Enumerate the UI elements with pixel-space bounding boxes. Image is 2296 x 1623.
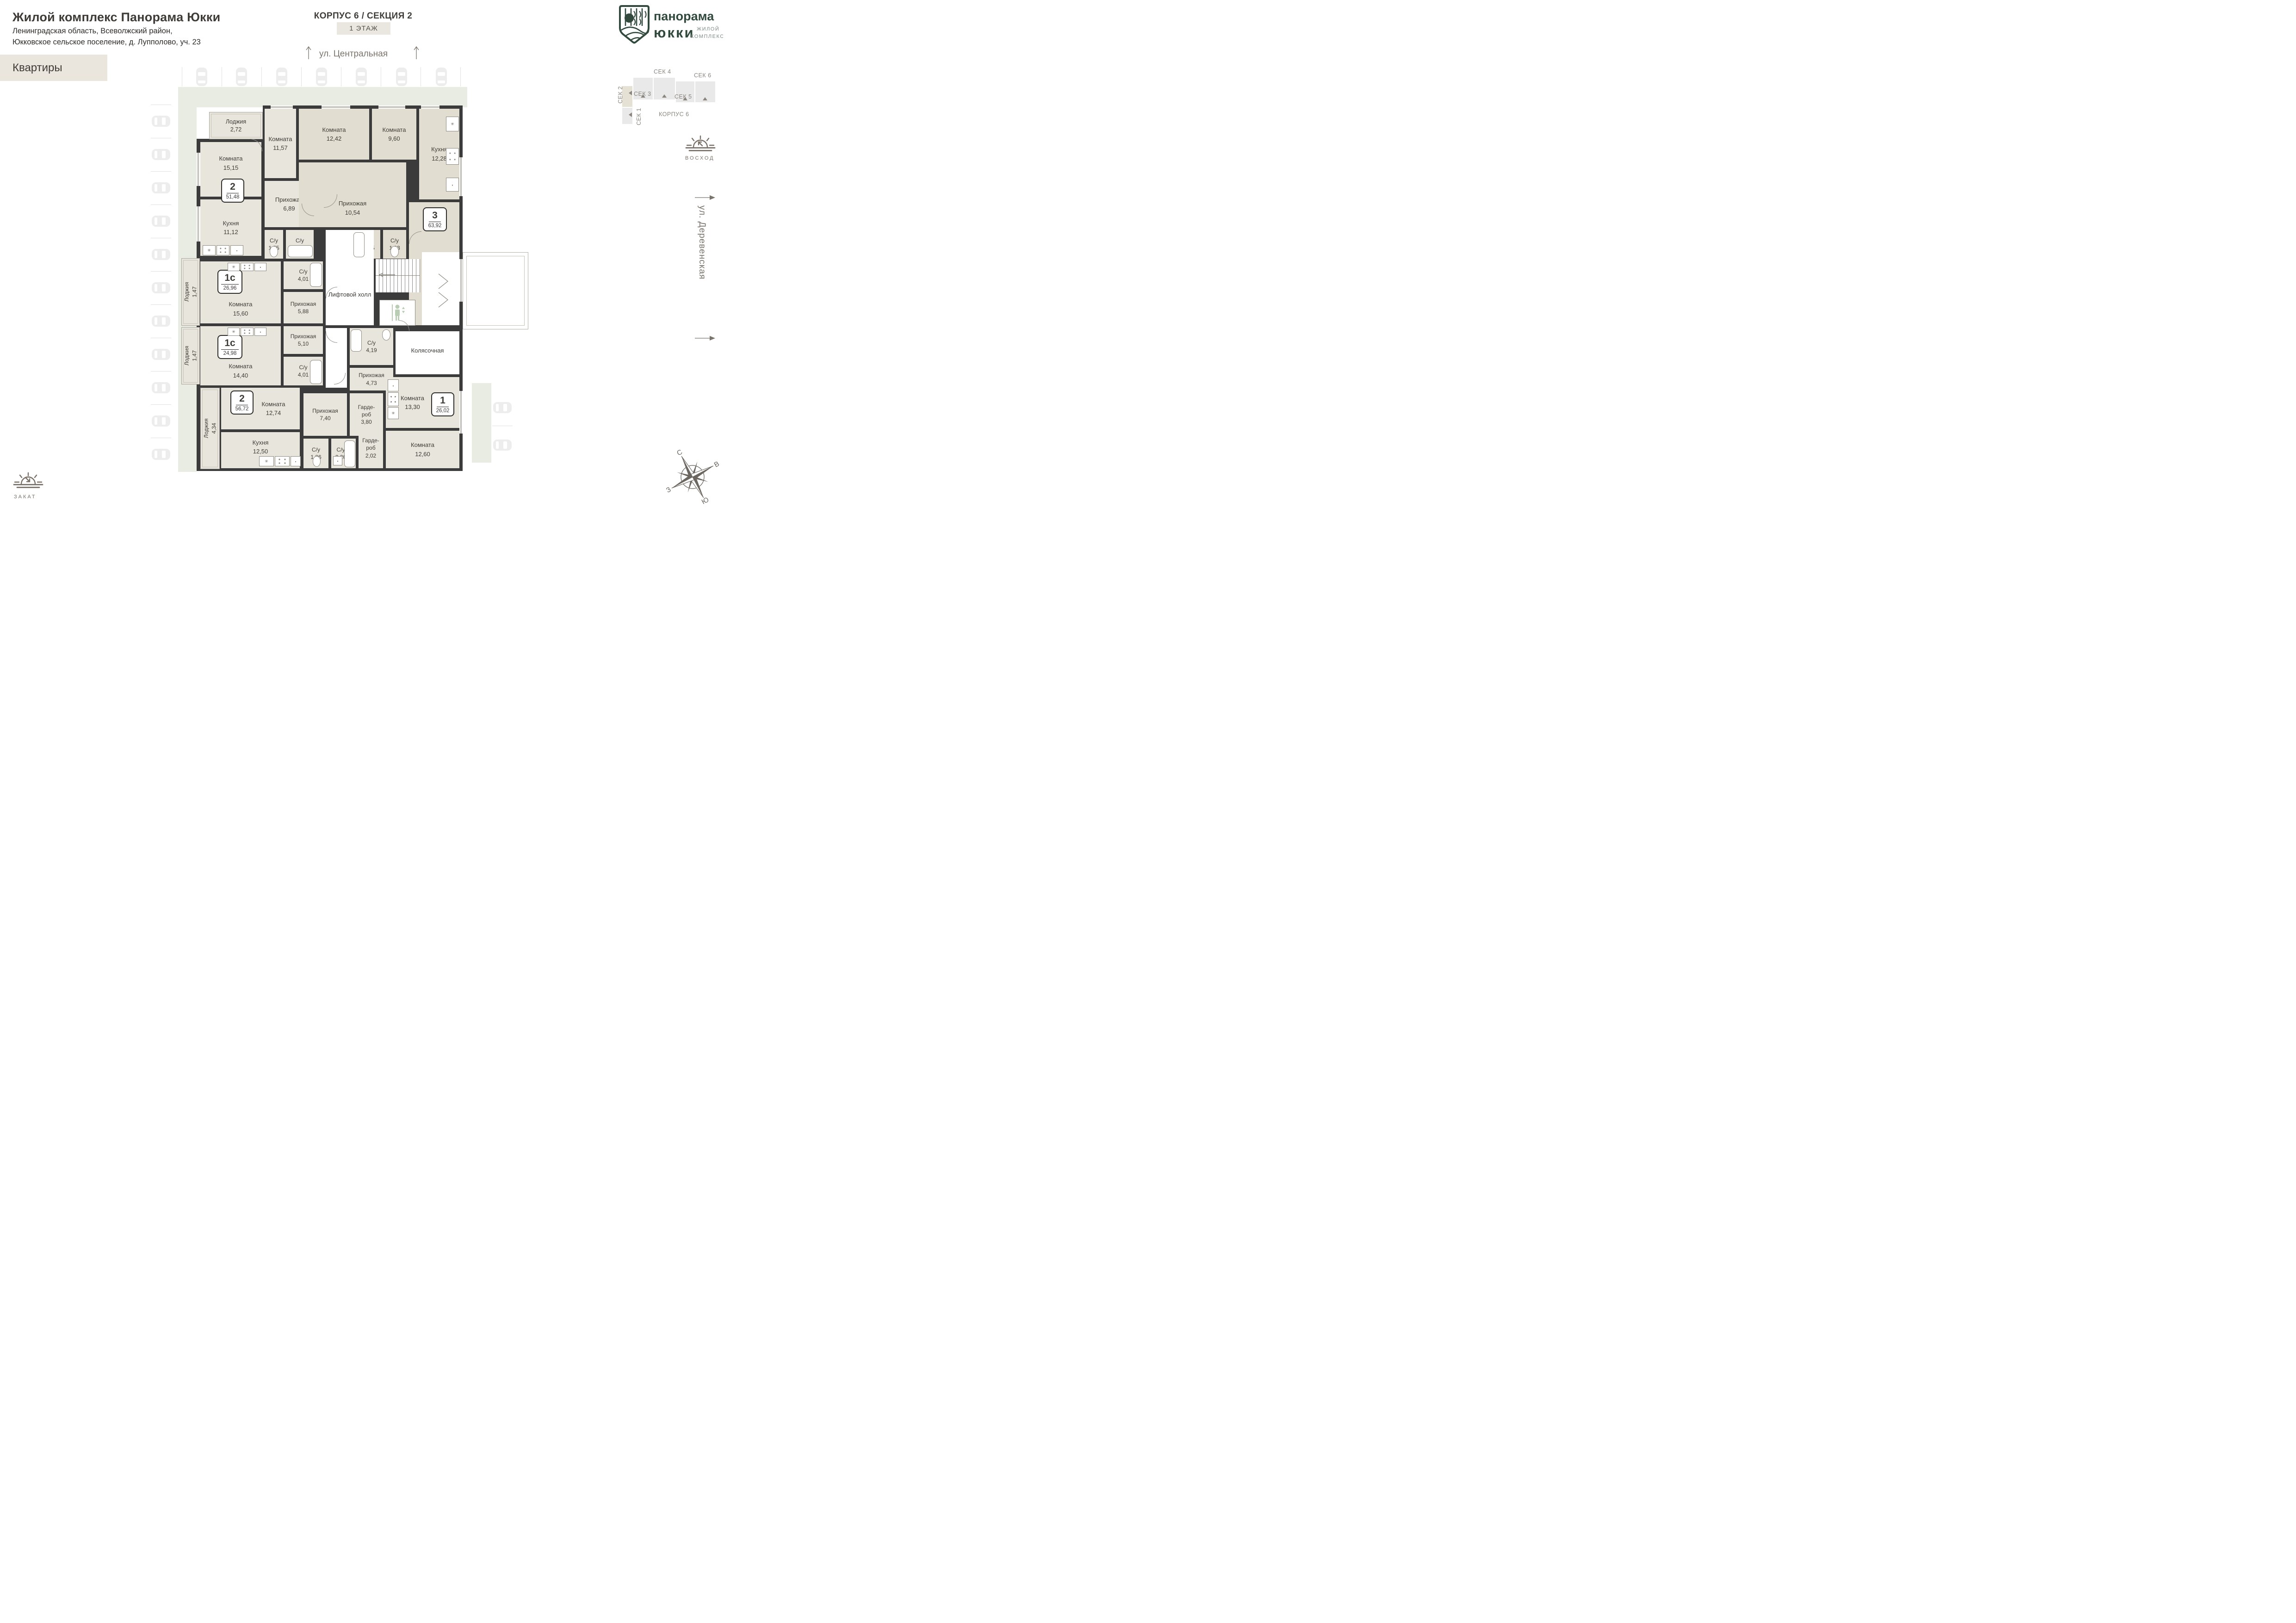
street-right-label: ул. Деревенская — [697, 205, 707, 279]
sunrise-label: ВОСХОД — [685, 155, 715, 161]
apartment-badge-2-56-72[interactable]: 256,72 — [230, 390, 254, 415]
car-icon — [151, 447, 171, 461]
car-icon — [492, 401, 513, 415]
car-icon — [235, 67, 248, 87]
kitchen-sink-icon — [254, 328, 266, 336]
car-icon — [275, 67, 289, 87]
fridge-icon: ✳ — [388, 407, 399, 419]
fridge-icon: ✳ — [228, 328, 240, 336]
toilet-icon — [382, 329, 390, 341]
window — [459, 259, 463, 302]
tab-apartments[interactable]: Квартиры — [0, 55, 107, 81]
room-garderob-2-02[interactable]: Гарде-роб2,02 — [359, 428, 383, 468]
brand-type-line2: КОМПЛЕКС — [691, 33, 723, 41]
tab-apartments-label: Квартиры — [12, 62, 62, 74]
minimap-marker-icon — [662, 94, 667, 98]
building-section-title: КОРПУС 6 / СЕКЦИЯ 2 — [278, 11, 449, 21]
minimap-marker-icon — [703, 97, 707, 100]
lift-hall — [326, 230, 374, 325]
window — [421, 105, 439, 109]
room-prihozhaya-7-40[interactable]: Прихожая7,40 — [303, 393, 347, 436]
minimap-label-sek2: СЕК 2 — [617, 86, 624, 104]
bathtub-icon — [310, 360, 322, 384]
room-komnata-12-42[interactable]: Комната12,42 — [299, 109, 369, 160]
sunset-label: ЗАКАТ — [14, 494, 37, 500]
stove-icon — [275, 456, 290, 466]
compass-icon: С В З Ю — [662, 447, 723, 507]
page-title: Жилой комплекс Панорама Юкки — [12, 10, 220, 25]
stove-icon — [446, 148, 459, 165]
entrance-canopy — [463, 252, 528, 329]
car-icon — [492, 438, 513, 452]
car-icon — [395, 67, 408, 87]
page-subtitle-line2: Юкковское сельское поселение, д. Лупполо… — [12, 37, 201, 48]
bathtub-icon — [288, 245, 313, 257]
apartment-badge-2-51-48[interactable]: 251,48 — [221, 179, 244, 203]
kitchen-sink-icon — [388, 379, 399, 391]
site-band-top — [178, 87, 467, 107]
window — [378, 105, 405, 109]
window — [459, 391, 463, 434]
room-loggia-4-34[interactable]: Лоджия4,34 — [200, 388, 220, 469]
apartment-badge-1-26-02[interactable]: 126,02 — [431, 392, 454, 416]
brand-logo-icon — [619, 5, 650, 45]
car-icon — [315, 67, 328, 87]
apartment-badge-1s-24-98[interactable]: 1с24,98 — [217, 335, 242, 359]
fridge-icon: ✳ — [228, 263, 240, 271]
page-subtitle-line1: Ленинградская область, Всеволжский район… — [12, 26, 173, 37]
room-loggia-1-47[interactable]: Лоджия1,47 — [181, 258, 200, 326]
sink-icon — [333, 456, 342, 465]
compass-east: В — [713, 460, 721, 469]
apartment-badge-1s-26-96[interactable]: 1с26,96 — [217, 270, 242, 294]
minimap-label-sek6: СЕК 6 — [694, 72, 712, 79]
stroller-room-label: Колясочная — [397, 346, 458, 355]
minimap-marker-icon — [629, 112, 632, 117]
car-icon — [354, 67, 368, 87]
room-prihozhaya-5-10[interactable]: Прихожая5,10 — [284, 326, 323, 354]
minimap-marker-icon — [629, 91, 632, 95]
parking-column-right — [492, 389, 513, 464]
room-komnata-12-60[interactable]: Комната12,60 — [386, 431, 459, 468]
room-loggia-2-72[interactable]: Лоджия2,72 — [209, 112, 263, 139]
floor-label: 1 ЭТАЖ — [349, 25, 378, 32]
toilet-icon — [270, 246, 278, 257]
parking-column-left — [151, 105, 171, 471]
site-band-right — [472, 383, 491, 463]
toilet-icon — [390, 246, 399, 257]
car-icon — [151, 114, 171, 128]
window — [271, 105, 293, 109]
floor-selector[interactable]: 1 ЭТАЖ — [337, 22, 390, 35]
minimap-label-sek4: СЕК 4 — [654, 68, 671, 75]
room-komnata-11-57[interactable]: Комната11,57 — [265, 109, 296, 178]
bathtub-icon — [351, 329, 362, 352]
room-komnata-9-60[interactable]: Комната9,60 — [372, 109, 416, 160]
car-icon — [151, 148, 171, 161]
stove-icon — [241, 328, 254, 336]
car-icon — [151, 314, 171, 328]
fridge-icon: ✳ — [259, 456, 274, 466]
car-icon — [151, 381, 171, 395]
minimap-label-sek5: СЕК 5 — [675, 93, 692, 100]
minimap-section-2[interactable] — [622, 86, 632, 107]
kitchen-sink-icon — [230, 245, 243, 255]
page: Жилой комплекс Панорама Юкки Ленинградск… — [0, 0, 723, 511]
car-icon — [151, 181, 171, 195]
compass-west: З — [665, 486, 672, 495]
lift-hall-label: Лифтовой холл — [319, 290, 380, 299]
car-icon — [434, 67, 448, 87]
window — [459, 157, 463, 196]
toilet-icon — [313, 456, 321, 467]
minimap-label-sek3: СЕК 3 — [634, 91, 651, 97]
car-icon — [151, 281, 171, 295]
kitchen-sink-icon — [291, 456, 301, 466]
compass-south: Ю — [700, 496, 710, 506]
car-icon — [151, 214, 171, 228]
stove-icon — [388, 392, 399, 406]
plan-header: КОРПУС 6 / СЕКЦИЯ 2 — [278, 11, 449, 21]
car-icon — [151, 414, 171, 428]
kitchen-sink-icon — [446, 178, 459, 192]
arrow-right-icon — [694, 194, 716, 201]
room-prihozhaya-10-54[interactable]: Прихожая10,54 — [299, 162, 406, 227]
room-loggia-1-47-second[interactable]: Лоджия1,47 — [181, 327, 200, 384]
brand-name-line1: панорама — [654, 10, 714, 23]
apartment-badge-3-63-92[interactable]: 363,92 — [423, 207, 447, 231]
stove-icon — [241, 263, 254, 271]
stairs-arrow-icon — [378, 272, 396, 278]
arrow-up-icon — [305, 45, 312, 60]
compass-north: С — [675, 448, 684, 457]
sunrise-icon — [684, 133, 717, 154]
arrow-up-icon — [413, 45, 420, 60]
kitchen-sink-icon — [254, 263, 266, 271]
fridge-icon: ✳ — [446, 117, 459, 131]
car-icon — [151, 248, 171, 261]
room-prihozhaya-5-88[interactable]: Прихожая5,88 — [284, 292, 323, 323]
street-top-label: ул. Центральная — [319, 49, 388, 59]
minimap-korpus-label: КОРПУС 6 — [659, 111, 689, 118]
car-icon — [151, 347, 171, 361]
window — [197, 153, 200, 186]
brand-type-line1: ЖИЛОЙ — [697, 26, 719, 33]
window — [322, 105, 350, 109]
stove-icon — [217, 245, 229, 255]
brand-name-line2: юкки — [654, 25, 695, 40]
elevator-person-icon — [390, 303, 405, 323]
bathtub-icon — [353, 232, 365, 257]
parking-row-top — [182, 67, 461, 87]
bathtub-icon — [310, 263, 322, 287]
car-icon — [195, 67, 209, 87]
minimap-label-sek1: СЕК 1 — [636, 108, 642, 125]
sunset-icon — [12, 470, 44, 490]
entrance-door-icon — [438, 273, 450, 308]
bathtub-icon — [344, 440, 355, 467]
arrow-right-icon — [694, 335, 716, 341]
fridge-icon: ✳ — [203, 245, 216, 255]
window — [197, 206, 200, 242]
